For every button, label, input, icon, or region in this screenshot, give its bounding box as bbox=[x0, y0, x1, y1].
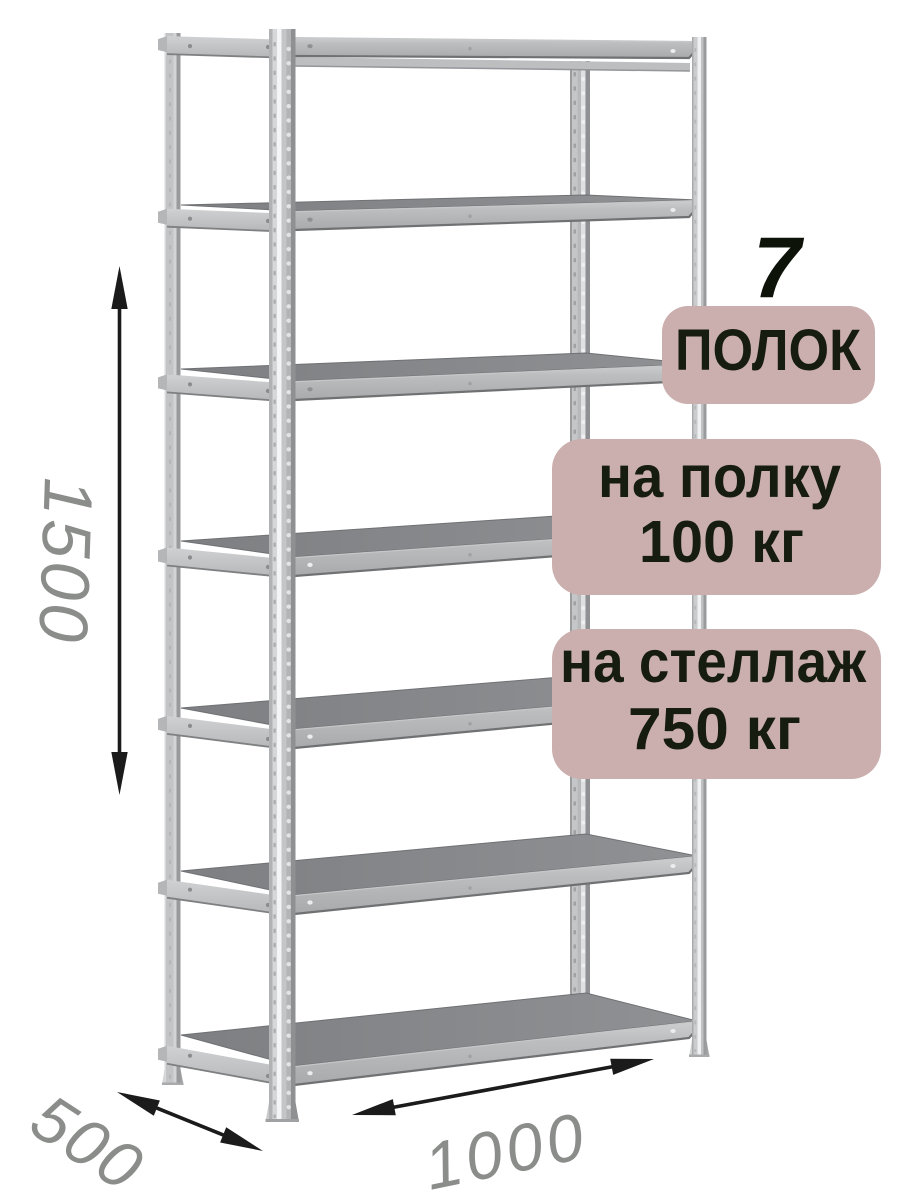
svg-text:ПОЛОК: ПОЛОК bbox=[675, 318, 862, 383]
svg-text:750 кг: 750 кг bbox=[628, 696, 801, 762]
svg-text:на полку: на полку bbox=[598, 444, 841, 510]
svg-text:100 кг: 100 кг bbox=[639, 509, 804, 575]
svg-text:на стеллаж: на стеллаж bbox=[560, 629, 867, 695]
svg-text:1500: 1500 bbox=[24, 476, 107, 646]
svg-text:7: 7 bbox=[753, 220, 805, 316]
